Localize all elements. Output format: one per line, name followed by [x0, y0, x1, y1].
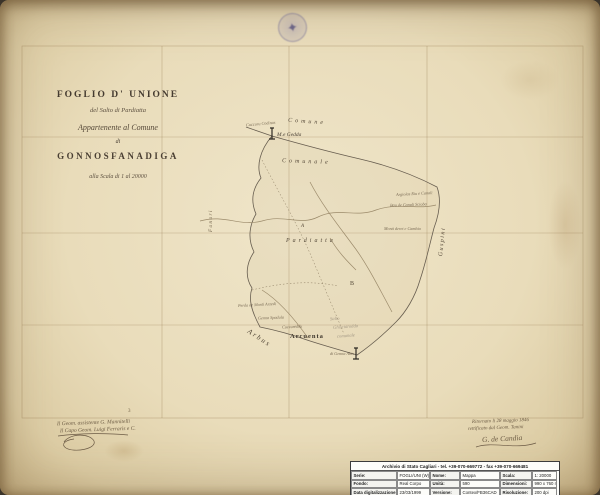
stamp-glyph: ✦	[286, 19, 300, 37]
label-arcuenta: Arcuenta	[290, 333, 324, 340]
field-value-scala: 1: 20000	[532, 471, 557, 480]
label-marker-b: B	[350, 281, 354, 287]
field-value-serie: FOGLI/UNI (W)	[397, 471, 430, 480]
field-label-risoluzione: Risoluzione:	[500, 488, 532, 495]
map-subtitle-salto: del Salto di Pardiatta	[48, 107, 188, 114]
field-value-data-digitalizzazione: 23/03/1999	[397, 488, 430, 495]
field-label-scala: Scala:	[500, 471, 532, 480]
archive-metadata-table: Serie: FOGLI/UNI (W) Nome: Mappa Scala: …	[351, 471, 559, 495]
field-value-fondo: Real Corpo	[397, 480, 430, 489]
label-marker-a: A	[301, 224, 304, 229]
label-fanari: Fanari	[209, 209, 214, 232]
field-value-versione: Contex/FB36CAD	[460, 488, 500, 495]
field-label-data-digitalizzazione: Data digitalizzazione:	[351, 488, 397, 495]
field-label-versione: Versione:	[430, 488, 460, 495]
boundary-note: di Genna Abis	[330, 351, 354, 356]
territory-boundary-line	[246, 127, 439, 355]
field-value-nome: Mappa	[460, 471, 500, 480]
archive-contact-line: Archivio di Stato Cagliari - tel. +39-07…	[351, 462, 559, 471]
boundary-note: Monti deret e Cambia	[384, 226, 421, 231]
field-label-fondo: Fondo:	[351, 480, 397, 489]
commune-name: GONNOSFANADIGA	[48, 151, 188, 161]
map-subtitle-di: di	[48, 139, 188, 145]
title-block: FOGLIO D' UNIONE del Salto di Pardiatta …	[48, 90, 188, 180]
label-pardiatta: Pardiatta	[286, 238, 336, 244]
boundary-note: Genna Spadula	[258, 315, 284, 321]
map-title: FOGLIO D' UNIONE	[48, 90, 188, 100]
field-value-risoluzione: 200 dpi	[532, 488, 557, 495]
map-subtitle-appartenenza: Appartenente al Comune	[48, 123, 188, 132]
pencil-note: Salto	[330, 316, 340, 322]
scanned-map-page: FOGLIO D' UNIONE del Salto di Pardiatta …	[0, 0, 600, 495]
field-label-serie: Serie:	[351, 471, 397, 480]
field-label-nome: Nome:	[430, 471, 460, 480]
field-label-unita: Unità:	[430, 480, 460, 489]
field-value-unita: 590	[460, 480, 500, 489]
grid-numeral: 3	[128, 409, 131, 414]
signature-flourish-left	[58, 434, 128, 451]
archive-info-card: Archivio di Stato Cagliari - tel. +39-07…	[350, 461, 560, 495]
field-value-dimensioni: 990 x 760 mm	[532, 480, 557, 489]
boundary-note: Cuccureddu	[282, 323, 303, 329]
scale-note: alla Scala di 1 al 20000	[48, 174, 188, 180]
label-monte-gedda: M.e Gedda	[277, 132, 301, 138]
field-label-dimensioni: Dimensioni:	[500, 480, 532, 489]
